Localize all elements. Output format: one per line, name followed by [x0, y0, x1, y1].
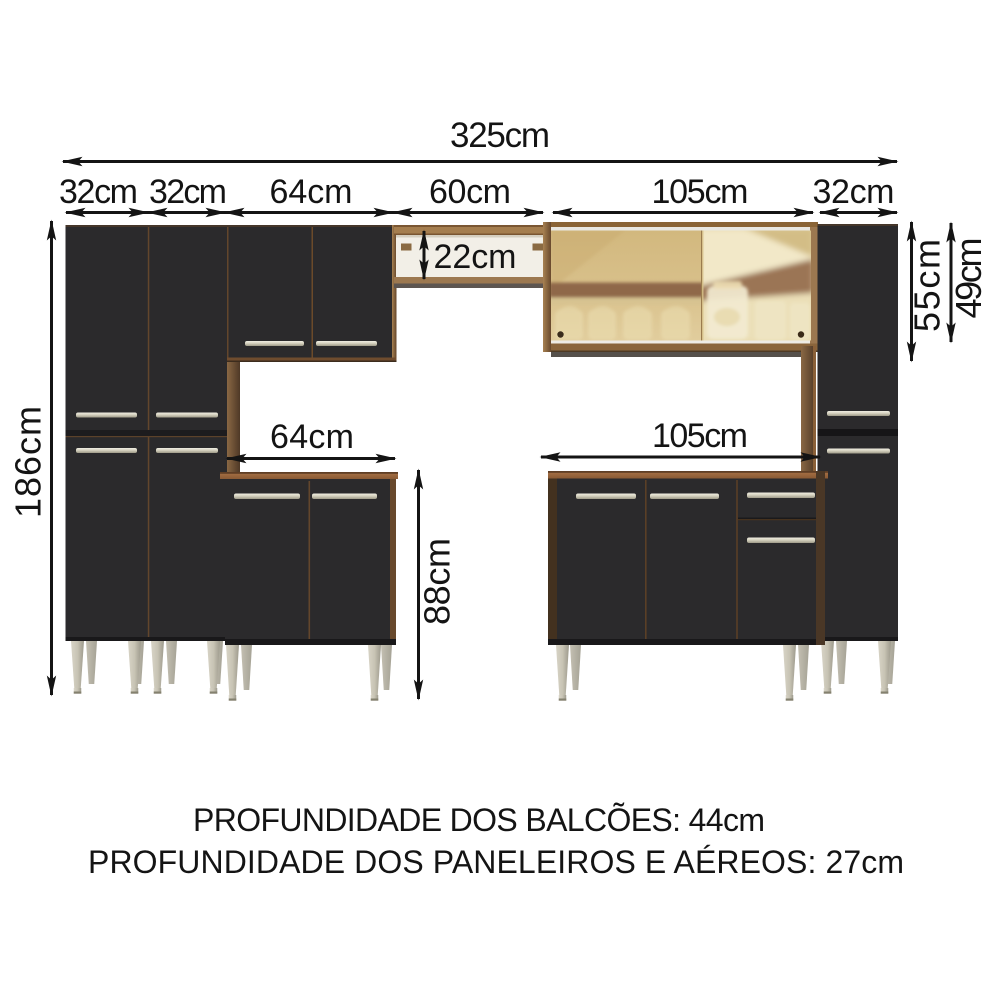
svg-text:32cm: 32cm: [813, 173, 895, 211]
svg-text:186cm: 186cm: [8, 406, 49, 518]
svg-text:105cm: 105cm: [652, 417, 748, 455]
svg-text:49cm: 49cm: [948, 238, 989, 319]
svg-text:PROFUNDIDADE DOS PANELEIROS E: PROFUNDIDADE DOS PANELEIROS E AÉREOS: 27…: [88, 844, 904, 880]
svg-text:60cm: 60cm: [429, 173, 511, 211]
svg-text:64cm: 64cm: [270, 173, 353, 211]
svg-text:64cm: 64cm: [270, 418, 354, 456]
svg-text:32cm: 32cm: [59, 173, 138, 211]
svg-text:PROFUNDIDADE DOS BALCÕES: 44cm: PROFUNDIDADE DOS BALCÕES: 44cm: [193, 802, 765, 838]
svg-text:22cm: 22cm: [434, 238, 517, 276]
svg-text:105cm: 105cm: [652, 173, 749, 211]
svg-text:88cm: 88cm: [417, 538, 458, 625]
svg-text:32cm: 32cm: [149, 173, 227, 211]
svg-text:325cm: 325cm: [450, 116, 550, 155]
